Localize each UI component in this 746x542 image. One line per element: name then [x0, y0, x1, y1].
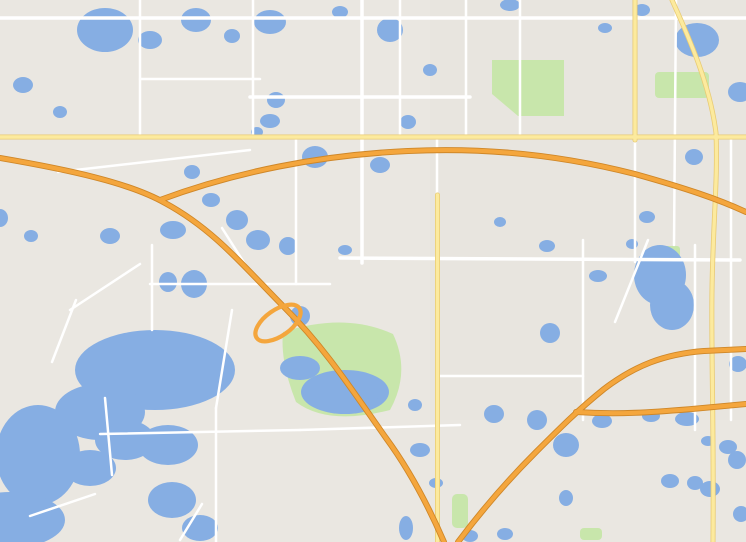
map-background — [0, 0, 746, 542]
map-canvas[interactable] — [0, 0, 746, 542]
